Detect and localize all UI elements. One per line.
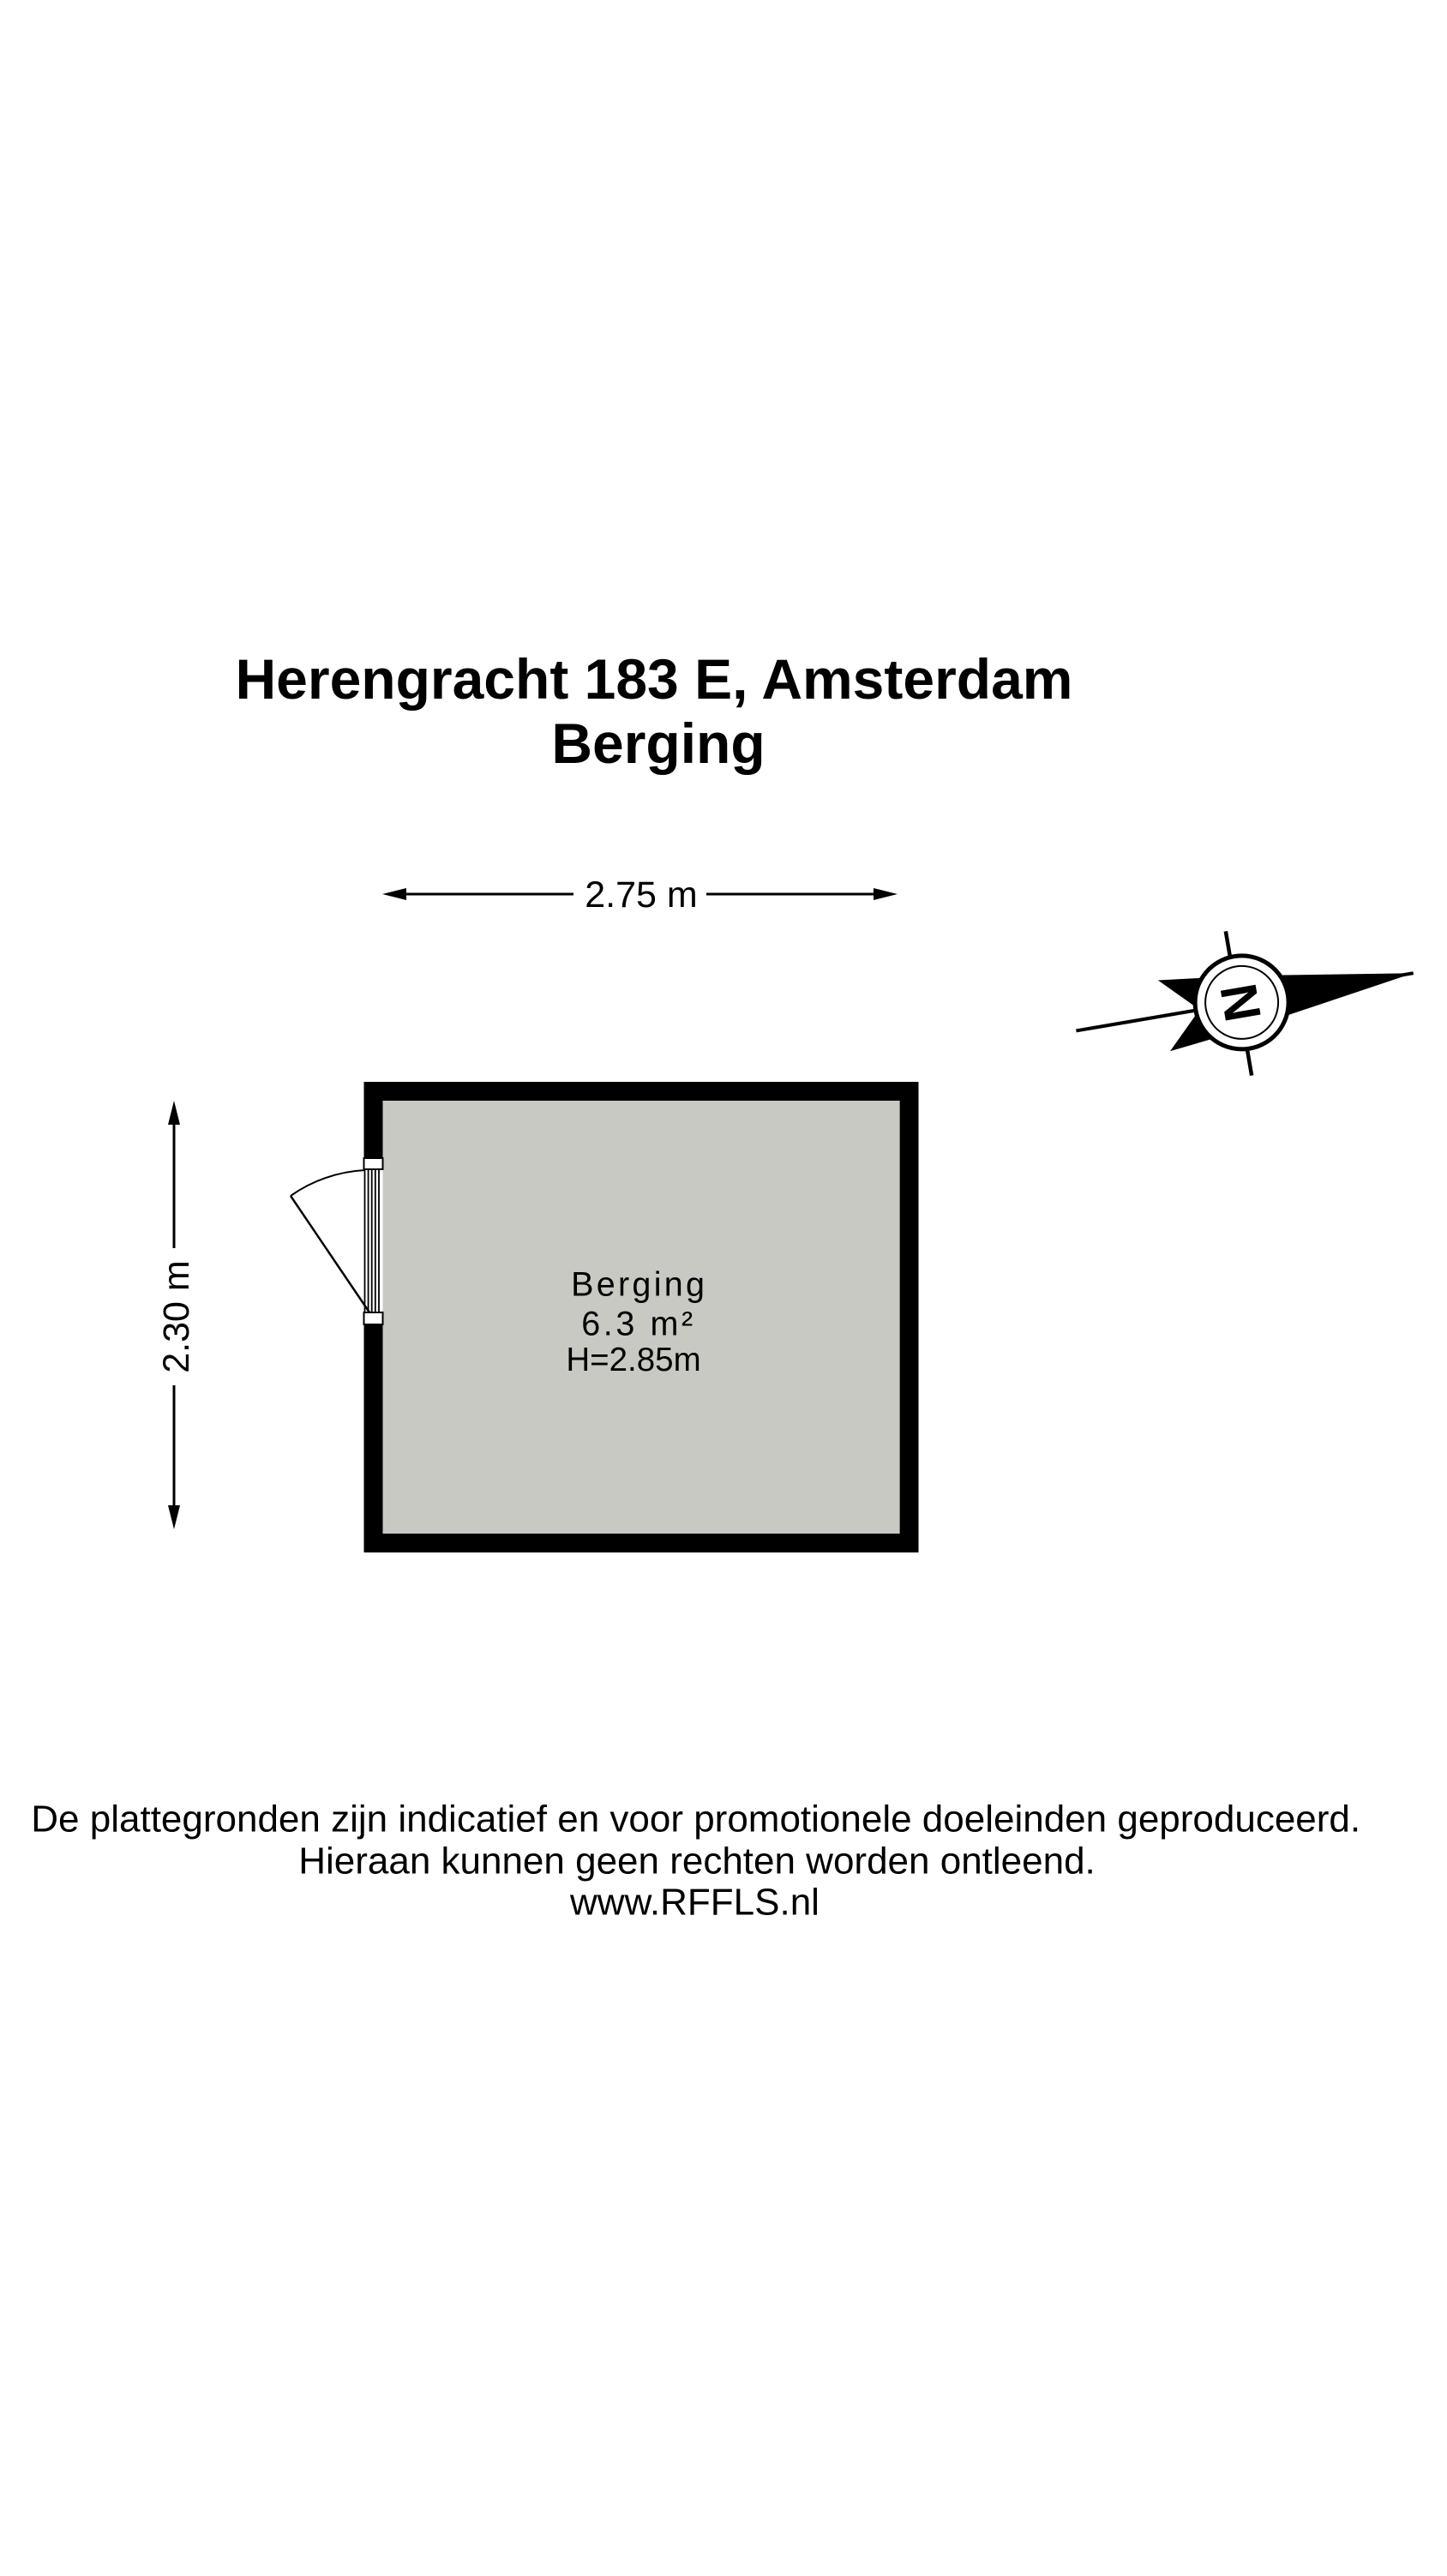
- svg-text:Herengracht 183 E, Amsterdam: Herengracht 183 E, Amsterdam: [236, 647, 1073, 711]
- svg-text:6.3 m²: 6.3 m²: [581, 1306, 696, 1343]
- svg-text:De plattegronden zijn indicati: De plattegronden zijn indicatief en voor…: [31, 1798, 1360, 1840]
- svg-text:2.75 m: 2.75 m: [585, 874, 697, 916]
- svg-text:Berging: Berging: [551, 712, 765, 775]
- svg-text:www.RFFLS.nl: www.RFFLS.nl: [569, 1882, 820, 1924]
- svg-text:Berging: Berging: [571, 1265, 707, 1303]
- svg-text:Hieraan kunnen geen rechten wo: Hieraan kunnen geen rechten worden ontle…: [298, 1840, 1096, 1882]
- svg-text:H=2.85m: H=2.85m: [566, 1342, 700, 1378]
- svg-text:2.30 m: 2.30 m: [156, 1260, 197, 1372]
